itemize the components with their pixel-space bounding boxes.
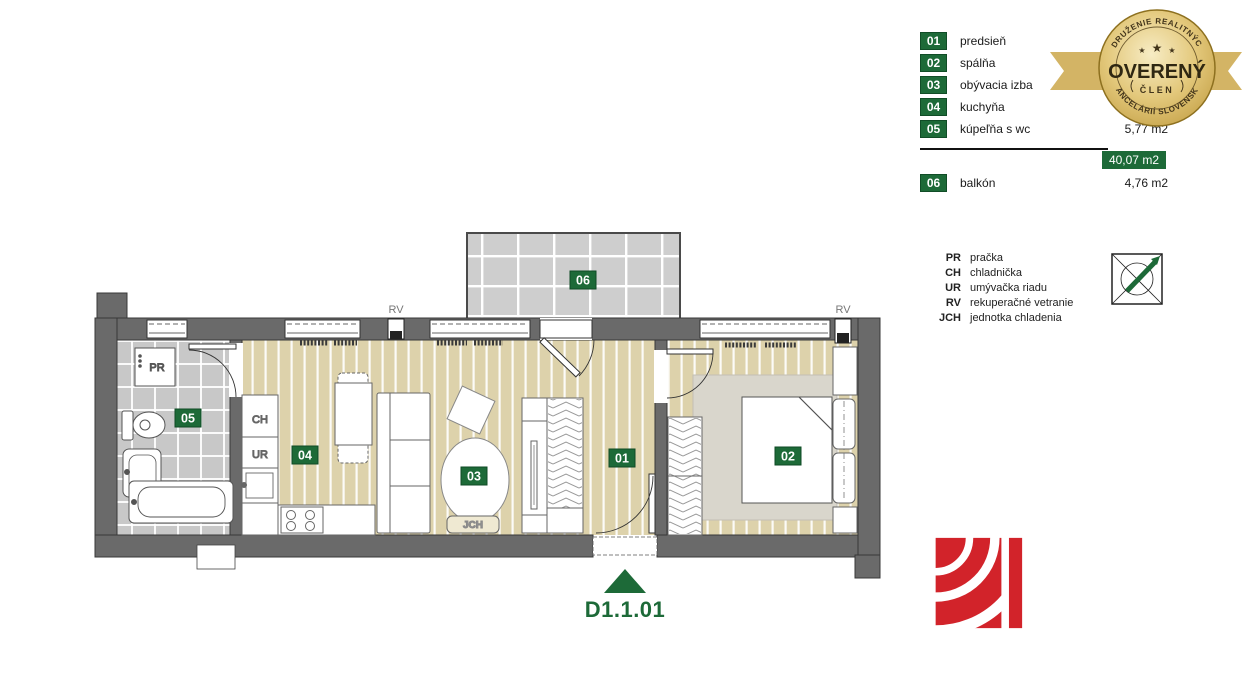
- abbreviation-legend: PR pračka CH chladnička UR umývačka riad…: [925, 251, 1073, 326]
- entrance-marker: D1.1.01: [585, 569, 666, 622]
- abbr-key: PR: [925, 251, 961, 266]
- toilet: [122, 411, 165, 440]
- svg-text:02: 02: [781, 450, 795, 464]
- room-name: kuchyňa: [960, 100, 1005, 114]
- room-name: obývacia izba: [960, 78, 1033, 92]
- abbr-key: CH: [925, 266, 961, 281]
- room-number-badge: 06: [920, 174, 947, 192]
- cooling-unit-label: JCH: [463, 520, 483, 531]
- window-kitchen: [285, 320, 360, 338]
- room-number-badge: 01: [920, 32, 947, 50]
- unit-id: D1.1.01: [585, 597, 666, 622]
- svg-text:01: 01: [615, 452, 629, 466]
- abbr-label: chladnička: [970, 266, 1022, 281]
- floor-plan: RV RV PR: [85, 225, 885, 625]
- window-living: [430, 320, 530, 338]
- abbr-key: RV: [925, 296, 961, 311]
- dresser-bottom: [833, 507, 857, 533]
- entrance-arrow: [604, 569, 646, 593]
- star-icon: ★: [1152, 41, 1163, 55]
- tv-wall-unit: [522, 398, 547, 533]
- room-name: predsieň: [960, 34, 1006, 48]
- abbr-row: CH chladnička: [925, 266, 1073, 281]
- svg-text:06: 06: [576, 274, 590, 288]
- wall-step-top-left: [97, 293, 127, 320]
- room-name: balkón: [960, 176, 995, 190]
- dining-table: [335, 383, 372, 445]
- bedroom-wardrobe: [668, 417, 702, 535]
- abbr-label: pračka: [970, 251, 1003, 266]
- star-icon: ★: [1138, 46, 1145, 55]
- badge-bedroom: 02: [775, 447, 801, 465]
- room-area: 4,76 m2: [1125, 176, 1168, 190]
- room-name: kúpeľňa s wc: [960, 122, 1030, 136]
- window-bedroom: [700, 320, 830, 338]
- abbr-row: RV rekuperačné vetranie: [925, 296, 1073, 311]
- room-number-badge: 04: [920, 98, 947, 116]
- badge-bathroom: 05: [175, 409, 201, 427]
- hall-wardrobe: [547, 398, 583, 533]
- dresser-top: [833, 347, 857, 395]
- compass-icon: [1111, 253, 1163, 305]
- wall-step-bottom-right: [855, 555, 880, 578]
- badge-hall: 01: [609, 449, 635, 467]
- bedroom-door-gap: [654, 350, 668, 403]
- company-logo: [930, 536, 1024, 630]
- room-number-badge: 03: [920, 76, 947, 94]
- rv-label-1: RV: [388, 304, 404, 316]
- certificate-badge: ZDRUŽENIE REALITNÝCH KANCELÁRIÍ SLOVENSK…: [1038, 6, 1254, 138]
- sofa: [377, 393, 430, 533]
- dining-set: [335, 373, 372, 463]
- abbr-key: JCH: [925, 311, 961, 326]
- bathtub: [129, 481, 233, 523]
- dishwasher-label: UR: [252, 449, 268, 461]
- legend-divider: [920, 148, 1108, 150]
- bathroom-door-gap: [229, 343, 243, 397]
- badge-subtitle: ČLEN: [1140, 84, 1175, 95]
- rv-label-2: RV: [835, 304, 851, 316]
- badge-kitchen: 04: [292, 446, 318, 464]
- abbr-key: UR: [925, 281, 961, 296]
- abbr-label: umývačka riadu: [970, 281, 1047, 296]
- abbr-row: UR umývačka riadu: [925, 281, 1073, 296]
- fridge-label: CH: [252, 414, 268, 426]
- abbr-row: PR pračka: [925, 251, 1073, 266]
- abbr-label: rekuperačné vetranie: [970, 296, 1073, 311]
- badge-title: OVERENÝ: [1108, 59, 1206, 83]
- exterior-step: [197, 545, 235, 569]
- cooling-unit: JCH: [447, 516, 499, 533]
- abbr-row: JCH jednotka chladenia: [925, 311, 1073, 326]
- svg-text:03: 03: [467, 470, 481, 484]
- room-number-badge: 05: [920, 120, 947, 138]
- washing-machine-label: PR: [149, 362, 164, 374]
- window-bathroom: [147, 320, 187, 338]
- star-icon: ★: [1168, 46, 1175, 55]
- svg-text:04: 04: [298, 449, 312, 463]
- badge-balcony: 06: [570, 271, 596, 289]
- total-area-badge: 40,07 m2: [1102, 151, 1166, 169]
- room-name: spálňa: [960, 56, 995, 70]
- legend-row: 06 balkón 4,76 m2: [920, 174, 1168, 192]
- svg-text:05: 05: [181, 412, 195, 426]
- abbr-label: jednotka chladenia: [970, 311, 1062, 326]
- badge-living: 03: [461, 467, 487, 485]
- room-number-badge: 02: [920, 54, 947, 72]
